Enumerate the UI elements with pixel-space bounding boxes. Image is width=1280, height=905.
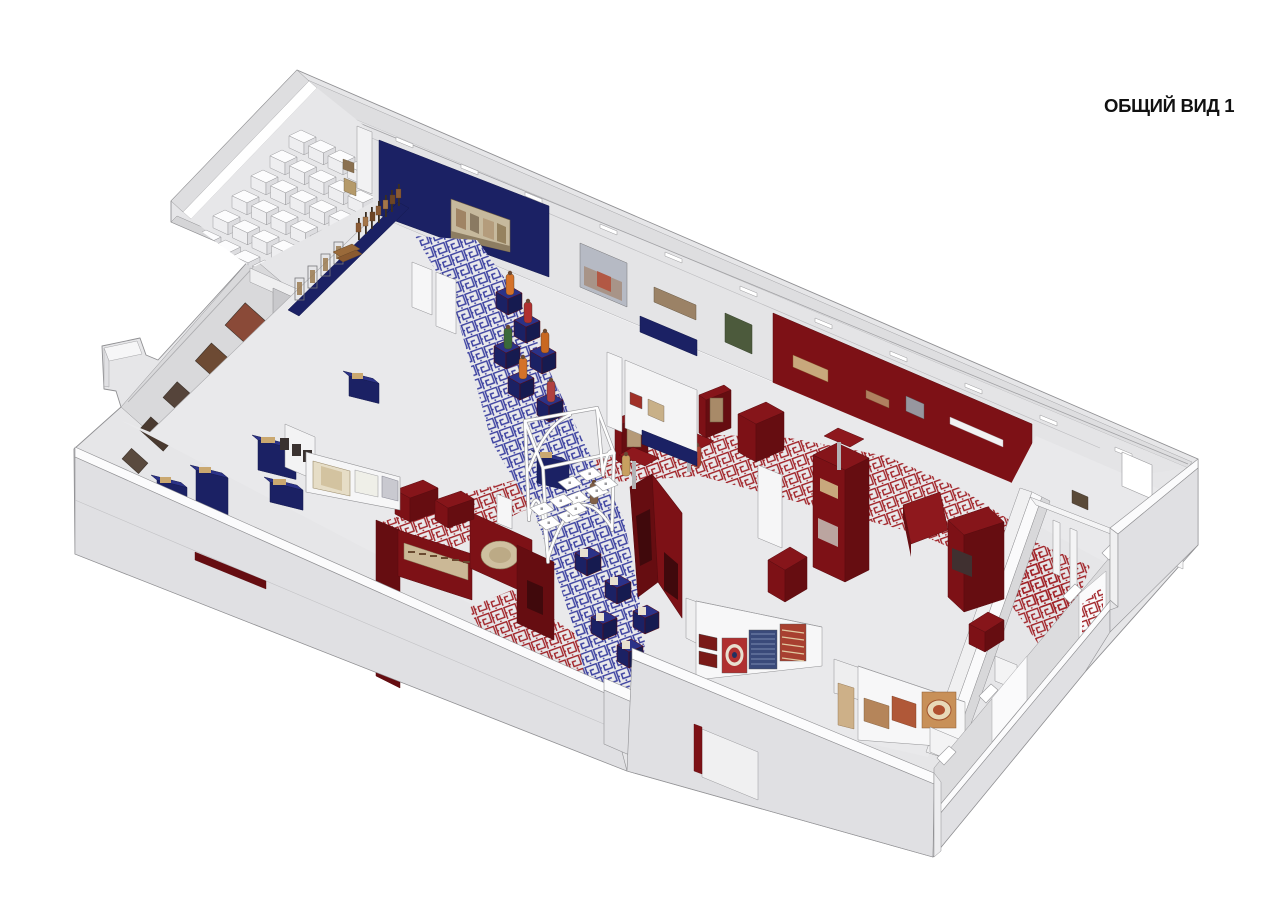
svg-text:ОБЩИЙ ВИД 1: ОБЩИЙ ВИД 1 bbox=[1104, 95, 1234, 116]
